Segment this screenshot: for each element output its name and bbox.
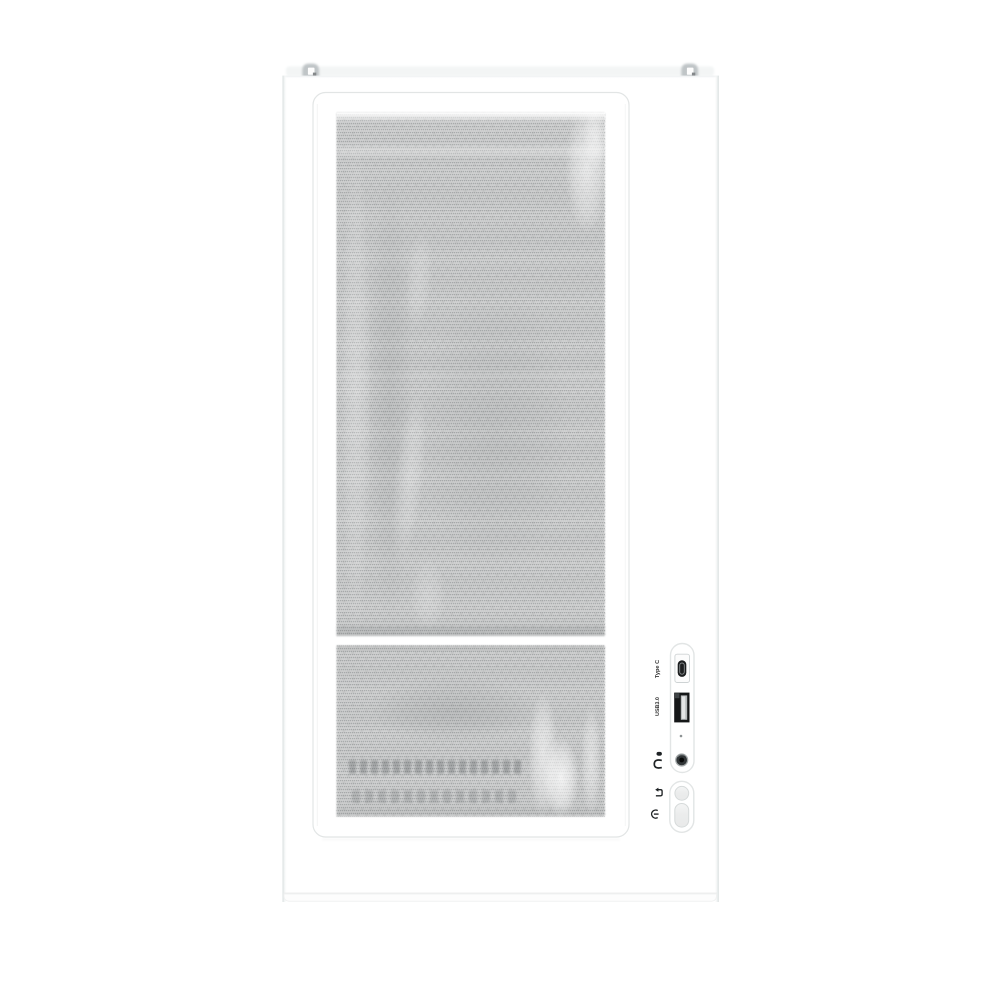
svg-text:Type C: Type C bbox=[655, 660, 661, 678]
svg-text:USB3.0: USB3.0 bbox=[655, 697, 661, 716]
